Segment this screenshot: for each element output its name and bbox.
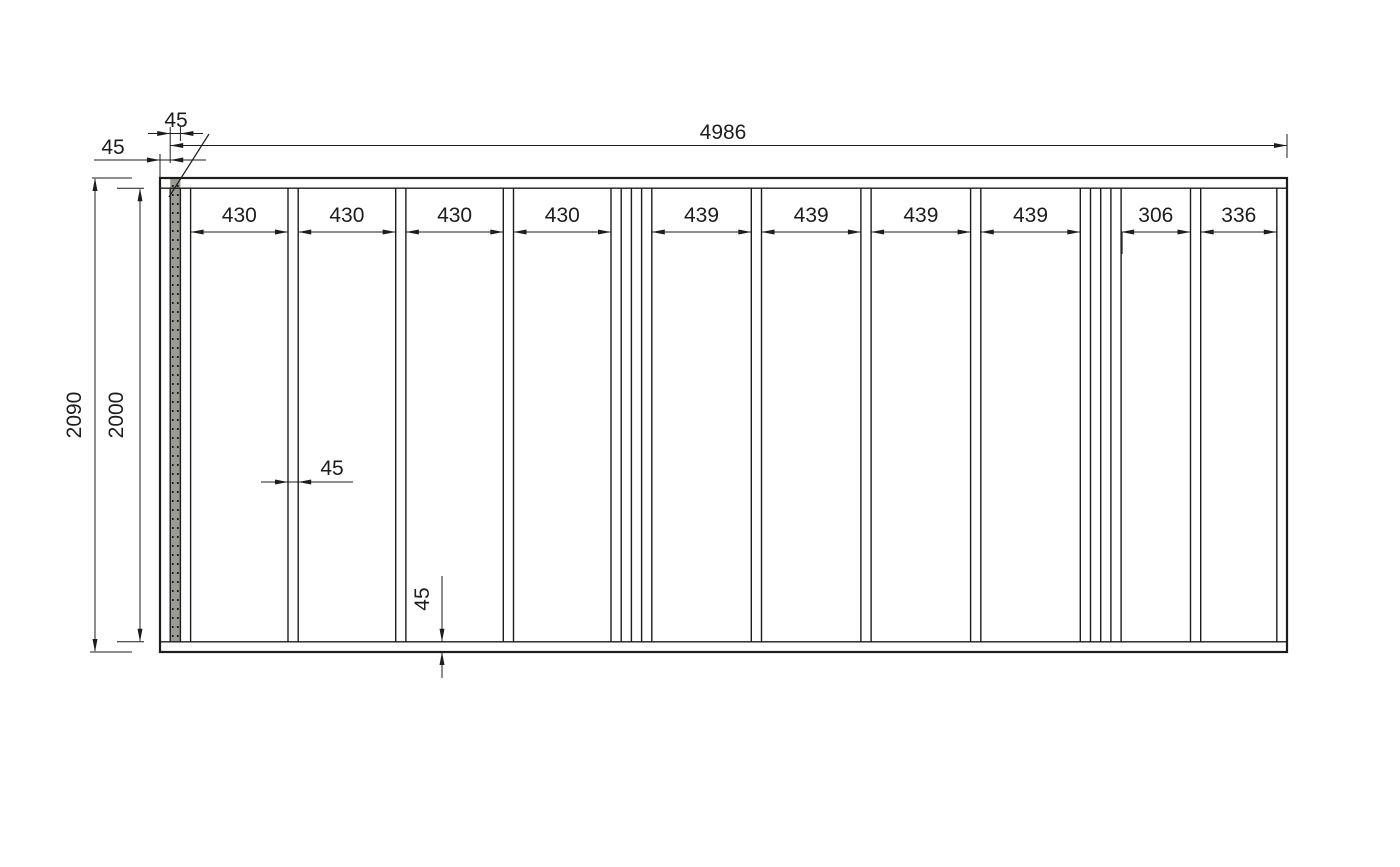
bay-dimension-label: 336 [1221,204,1256,227]
bay-dimension-label: 430 [437,204,472,227]
bay-dimension-label: 439 [903,204,938,227]
bay-dimension-label: 306 [1138,204,1173,227]
end-offset-label: 45 [101,136,124,159]
bay-dimension-label: 430 [329,204,364,227]
bottom-plate-label: 45 [411,587,434,610]
overall-height-label: 2090 [63,392,86,439]
stud-width-label: 45 [320,457,343,480]
bay-dimension-label: 430 [222,204,257,227]
end-stud-width-label: 45 [164,109,187,132]
interior-height-label: 2000 [105,392,128,439]
wall-framing-drawing: 4304304304304394394394393063364986454520… [0,0,1400,867]
bay-dimension-label: 430 [545,204,580,227]
overall-width-label: 4986 [700,121,747,144]
marked-stud-fill [170,179,180,642]
bay-dimension-label: 439 [1013,204,1048,227]
bay-dimension-label: 439 [794,204,829,227]
drawing-stage: 4304304304304394394394393063364986454520… [0,0,1400,867]
bay-dimension-label: 439 [684,204,719,227]
